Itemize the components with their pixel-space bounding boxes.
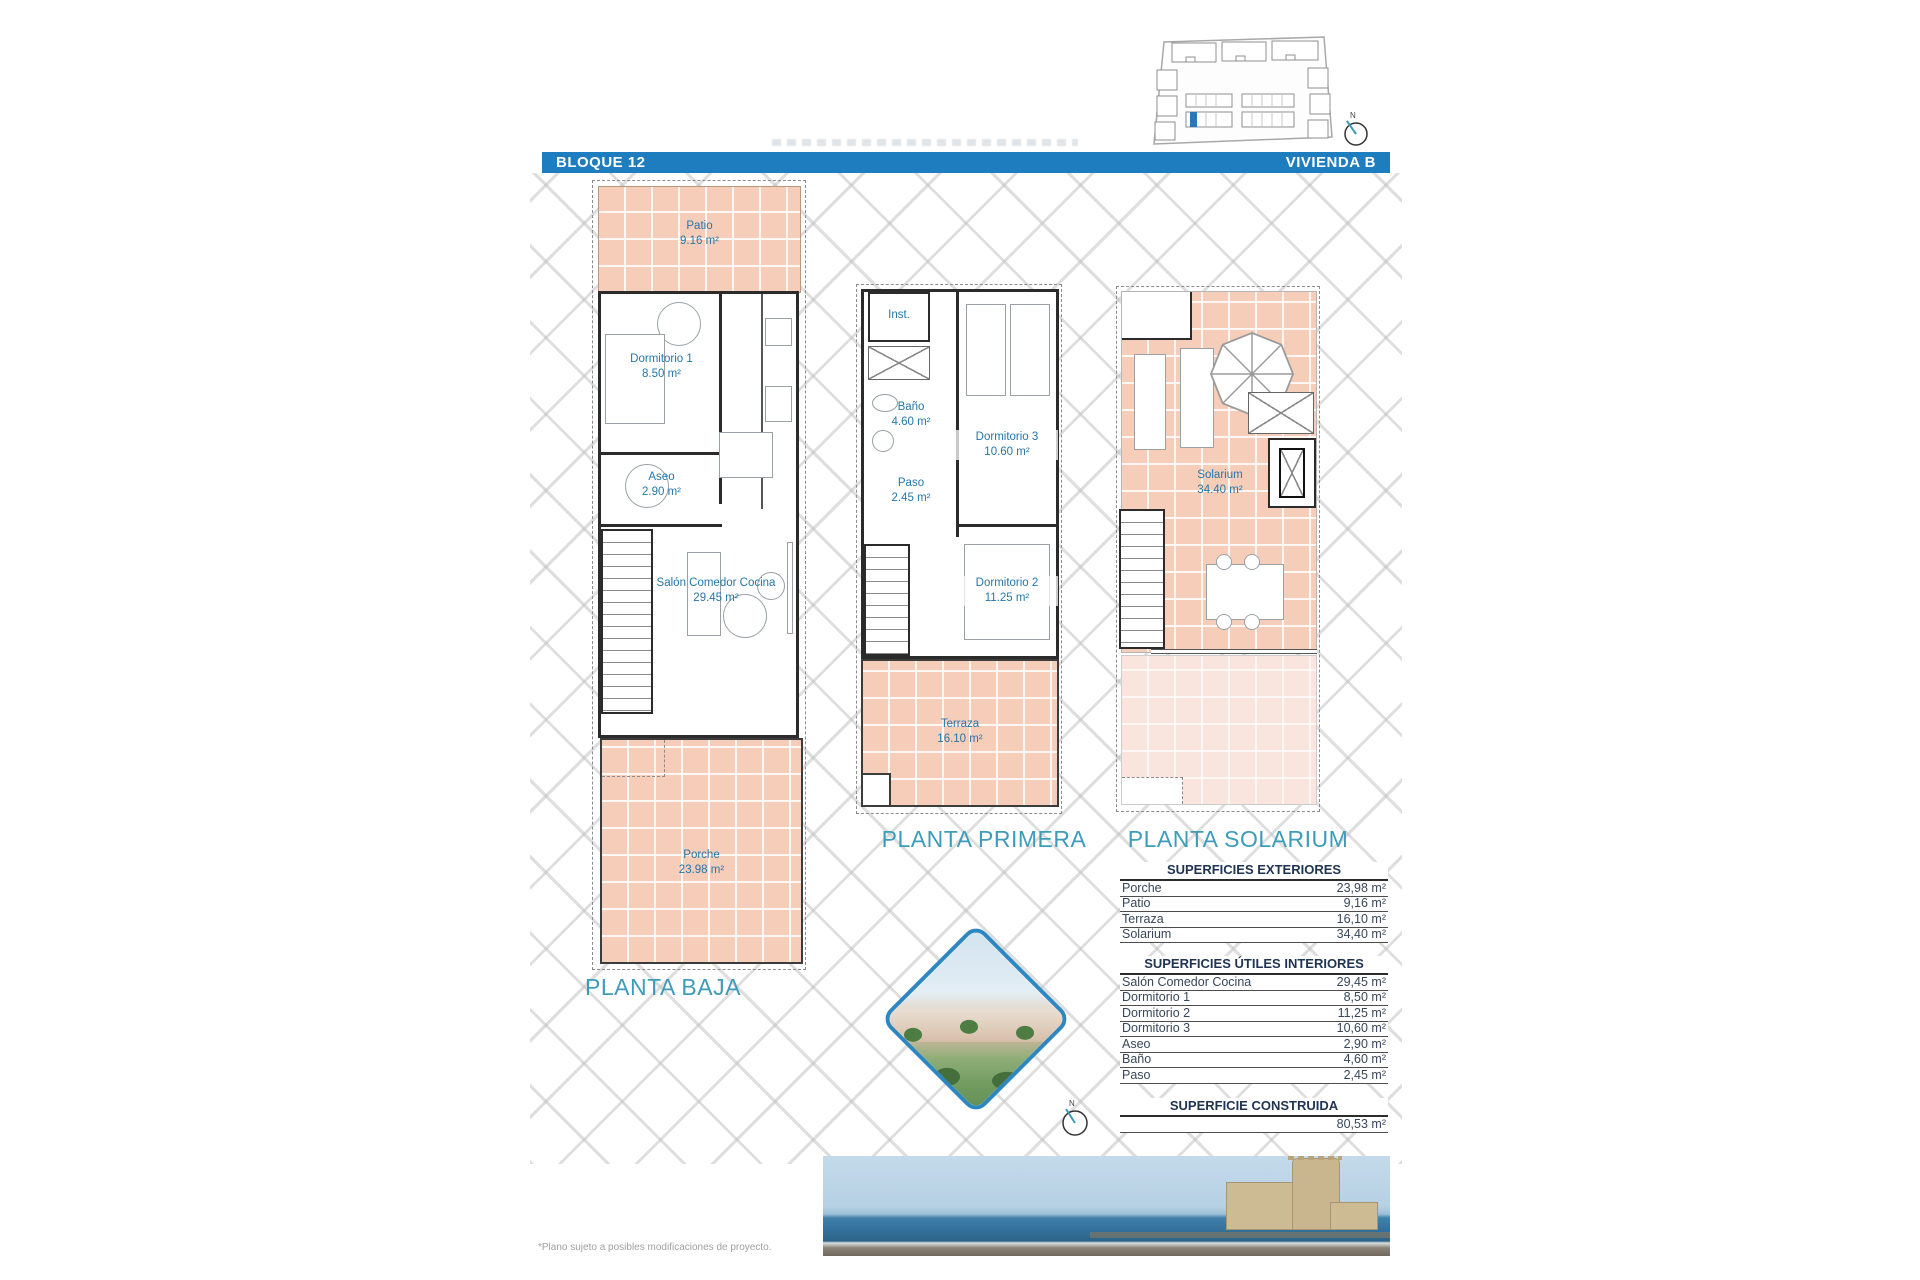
room-name: Solarium xyxy=(1158,468,1282,483)
room-label: Dormitorio 2 11.25 m² xyxy=(956,576,1058,606)
row-value: 10,60 m² xyxy=(1337,1022,1386,1036)
block-title: BLOQUE 12 xyxy=(556,154,646,171)
row-value: 80,53 m² xyxy=(1337,1118,1386,1132)
row-label: Dormitorio 2 xyxy=(1122,1007,1190,1021)
table-title: SUPERFICIES ÚTILES INTERIORES xyxy=(1120,956,1388,975)
room-name: Baño xyxy=(864,400,958,415)
stairs xyxy=(601,529,653,714)
plan-planta-solarium: Solarium 34.40 m² xyxy=(1116,286,1320,812)
row-value: 2,90 m² xyxy=(1344,1038,1386,1052)
room-porche: Porche 23.98 m² xyxy=(600,738,803,964)
row-label: Dormitorio 1 xyxy=(1122,991,1190,1005)
room-area: 34.40 m² xyxy=(1158,483,1282,498)
plan-title-solarium: PLANTA SOLARIUM xyxy=(1118,826,1358,853)
room-name: Paso xyxy=(864,476,958,491)
row-value: 34,40 m² xyxy=(1337,928,1386,942)
highlighted-unit xyxy=(1190,112,1197,127)
room-name: Salón Comedor Cocina xyxy=(635,576,797,591)
room-label: Porche 23.98 m² xyxy=(602,848,801,878)
row-value: 16,10 m² xyxy=(1337,913,1386,927)
table-row: Dormitorio 211,25 m² xyxy=(1120,1006,1388,1022)
row-label: Salón Comedor Cocina xyxy=(1122,976,1251,990)
room-label: Aseo 2.90 m² xyxy=(601,470,722,500)
room-label: Patio 9.16 m² xyxy=(599,219,800,249)
skylight xyxy=(1248,392,1314,434)
compass-icon: N xyxy=(1336,106,1376,150)
room-name: Dormitorio 2 xyxy=(956,576,1058,591)
room-area: 16.10 m² xyxy=(863,732,1057,747)
table-superficies-exteriores: SUPERFICIES EXTERIORES Porche23,98 m² Pa… xyxy=(1120,862,1388,943)
chair xyxy=(1216,554,1232,570)
footnote: *Plano sujeto a posibles modificaciones … xyxy=(538,1242,771,1253)
row-label: Paso xyxy=(1122,1069,1151,1083)
room-area: 23.98 m² xyxy=(602,863,801,878)
room-inst: Inst. xyxy=(868,292,930,342)
room-name: Porche xyxy=(602,848,801,863)
row-value: 9,16 m² xyxy=(1344,897,1386,911)
kitchen-sink xyxy=(765,318,792,346)
stairs xyxy=(1119,509,1165,649)
wall xyxy=(956,524,1056,527)
terraza-notch xyxy=(863,773,891,805)
table-row: Porche23,98 m² xyxy=(1120,881,1388,897)
house-first-floor: Inst. Baño 4.60 m² Dormitorio 3 10.60 m²… xyxy=(861,289,1059,659)
room-label: Paso 2.45 m² xyxy=(864,476,958,506)
row-value: 4,60 m² xyxy=(1344,1053,1386,1067)
room-label: Dormitorio 3 10.60 m² xyxy=(956,430,1058,460)
palm-tree xyxy=(960,1020,978,1034)
window-line xyxy=(1151,649,1317,654)
kitchen-hob xyxy=(765,386,792,422)
row-value: 2,45 m² xyxy=(1344,1069,1386,1083)
room-patio: Patio 9.16 m² xyxy=(598,186,801,293)
compass-icon: N xyxy=(1054,1094,1096,1140)
chimney xyxy=(1279,448,1305,498)
table-superficies-utiles-interiores: SUPERFICIES ÚTILES INTERIORES Salón Come… xyxy=(1120,956,1388,1084)
room-name: Dormitorio 3 xyxy=(956,430,1058,445)
plan-title-primera: PLANTA PRIMERA xyxy=(868,826,1100,853)
table-row: Salón Comedor Cocina29,45 m² xyxy=(1120,975,1388,991)
bed-dormitorio3 xyxy=(966,304,1006,396)
room-label: Baño 4.60 m² xyxy=(864,400,958,430)
beach-photo xyxy=(823,1156,1390,1256)
table-title: SUPERFICIE CONSTRUIDA xyxy=(1120,1098,1388,1117)
table-title: SUPERFICIES EXTERIORES xyxy=(1120,862,1388,881)
table-row: Baño4,60 m² xyxy=(1120,1053,1388,1069)
stair-opening xyxy=(1122,292,1192,340)
table-row: Dormitorio 18,50 m² xyxy=(1120,991,1388,1007)
room-area: 10.60 m² xyxy=(956,445,1058,460)
dining-table xyxy=(1206,564,1284,620)
wardrobe xyxy=(868,346,930,380)
wall xyxy=(601,524,722,527)
room-name: Terraza xyxy=(863,717,1057,732)
room-area: 8.50 m² xyxy=(601,367,722,382)
compass-north-label: N xyxy=(1069,1099,1075,1108)
house-ground-floor: Dormitorio 1 8.50 m² Aseo 2.90 m² Salón … xyxy=(598,291,799,738)
room-area: 11.25 m² xyxy=(956,591,1058,606)
sun-lounger xyxy=(1134,354,1166,450)
room-name: Patio xyxy=(599,219,800,234)
room-terraza: Terraza 16.10 m² xyxy=(861,659,1059,807)
porche-step-line xyxy=(602,740,665,777)
table-row: Solarium34,40 m² xyxy=(1120,928,1388,944)
room-area: 4.60 m² xyxy=(864,415,958,430)
room-area: 29.45 m² xyxy=(635,591,797,606)
row-label: Porche xyxy=(1122,882,1162,896)
row-value: 29,45 m² xyxy=(1337,976,1386,990)
header-bar: BLOQUE 12 VIVIENDA B xyxy=(542,152,1390,173)
table-superficie-construida: SUPERFICIE CONSTRUIDA 80,53 m² xyxy=(1120,1098,1388,1133)
table-row: Dormitorio 310,60 m² xyxy=(1120,1022,1388,1038)
room-name: Aseo xyxy=(601,470,722,485)
faded-watermark xyxy=(772,139,1078,146)
room-area: 2.90 m² xyxy=(601,485,722,500)
toilet xyxy=(872,430,894,452)
table-row: 80,53 m² xyxy=(1120,1117,1388,1133)
room-label: Salón Comedor Cocina 29.45 m² xyxy=(635,576,797,606)
row-label: Aseo xyxy=(1122,1038,1151,1052)
palm-tree xyxy=(1016,1026,1034,1040)
castle-crenellation xyxy=(1288,1156,1342,1160)
chair xyxy=(1244,614,1260,630)
row-value: 11,25 m² xyxy=(1338,1007,1386,1021)
castle-tower xyxy=(1226,1156,1376,1230)
table-row: Terraza16,10 m² xyxy=(1120,912,1388,928)
row-label: Patio xyxy=(1122,897,1151,911)
wall xyxy=(601,452,722,455)
bed-dormitorio3 xyxy=(1010,304,1050,396)
row-value: 8,50 m² xyxy=(1344,991,1386,1005)
dwelling-title: VIVIENDA B xyxy=(1286,154,1376,171)
chair xyxy=(1216,614,1232,630)
room-name: Dormitorio 1 xyxy=(601,352,722,367)
room-label: Solarium 34.40 m² xyxy=(1158,468,1282,498)
pier xyxy=(1090,1232,1390,1238)
plan-planta-primera: Inst. Baño 4.60 m² Dormitorio 3 10.60 m²… xyxy=(856,284,1062,814)
table-row: Paso2,45 m² xyxy=(1120,1068,1388,1084)
compass-north-label: N xyxy=(1350,111,1356,120)
row-label: Dormitorio 3 xyxy=(1122,1022,1190,1036)
dining-table xyxy=(719,432,773,478)
plan-planta-baja: Patio 9.16 m² Dormitorio 1 8.50 m² xyxy=(592,180,806,970)
table-row: Patio9,16 m² xyxy=(1120,897,1388,913)
chair xyxy=(1244,554,1260,570)
room-label: Dormitorio 1 8.50 m² xyxy=(601,352,722,382)
room-area: 2.45 m² xyxy=(864,491,958,506)
table-row: Aseo2,90 m² xyxy=(1120,1037,1388,1053)
plan-sheet: BLOQUE 12 VIVIENDA B N Patio 9.16 m² xyxy=(0,0,1920,1280)
castle-body xyxy=(1226,1182,1302,1230)
row-value: 23,98 m² xyxy=(1337,882,1386,896)
row-label: Baño xyxy=(1122,1053,1151,1067)
row-label: Solarium xyxy=(1122,928,1171,942)
site-plan xyxy=(1148,34,1338,150)
castle-wall xyxy=(1330,1202,1378,1230)
lower-roof-terrace xyxy=(1121,655,1317,805)
palm-tree xyxy=(904,1028,922,1042)
plan-title-baja: PLANTA BAJA xyxy=(578,974,748,1001)
room-name: Inst. xyxy=(870,308,928,323)
room-area: 9.16 m² xyxy=(599,234,800,249)
roof-notch xyxy=(1122,777,1183,804)
room-label: Terraza 16.10 m² xyxy=(863,717,1057,747)
row-label: Terraza xyxy=(1122,913,1164,927)
stairs xyxy=(864,544,910,656)
